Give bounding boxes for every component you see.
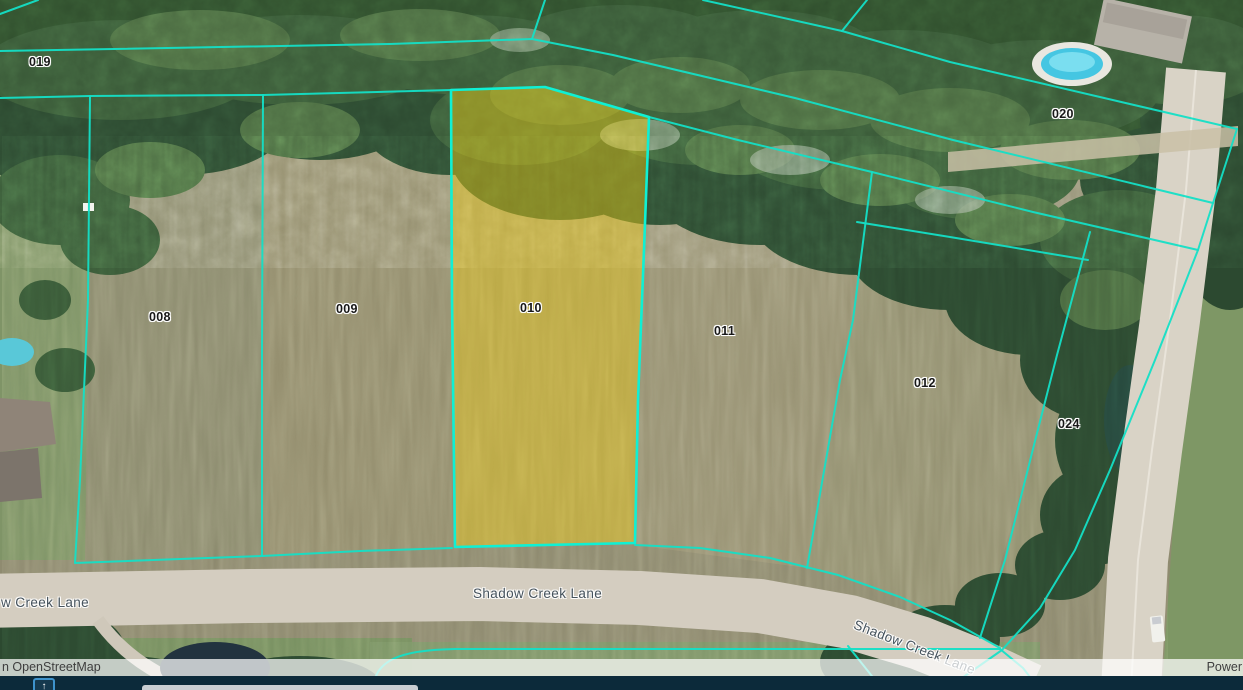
attribution-bar: n OpenStreetMap Power [0, 659, 1243, 676]
map-canvas[interactable]: 019 020 008 009 010 011 012 024 w Creek … [0, 0, 1243, 690]
panel-edge-handle[interactable] [142, 685, 418, 690]
parcel-label-010: 010 [520, 301, 542, 315]
parcel-label-012: 012 [914, 376, 936, 390]
parcel-label-009: 009 [336, 302, 358, 316]
parcel-label-024: 024 [1058, 417, 1080, 431]
street-label-center: Shadow Creek Lane [473, 586, 602, 601]
app-window: 019 020 008 009 010 011 012 024 w Creek … [0, 0, 1243, 690]
parcel-label-008: 008 [149, 310, 171, 324]
street-label-left: w Creek Lane [1, 595, 89, 610]
attribution-text: n OpenStreetMap [2, 659, 101, 676]
parcel-label-011: 011 [714, 324, 735, 338]
arrow-up-icon: ↑ [42, 681, 47, 690]
powered-by-text: Power [1207, 659, 1242, 676]
parcel-label-019: 019 [29, 55, 51, 69]
aerial-imagery [0, 0, 1243, 690]
selected-parcel-highlight[interactable] [451, 87, 649, 547]
expand-panel-button[interactable]: ↑ [33, 678, 55, 690]
parcel-label-020: 020 [1052, 107, 1074, 121]
